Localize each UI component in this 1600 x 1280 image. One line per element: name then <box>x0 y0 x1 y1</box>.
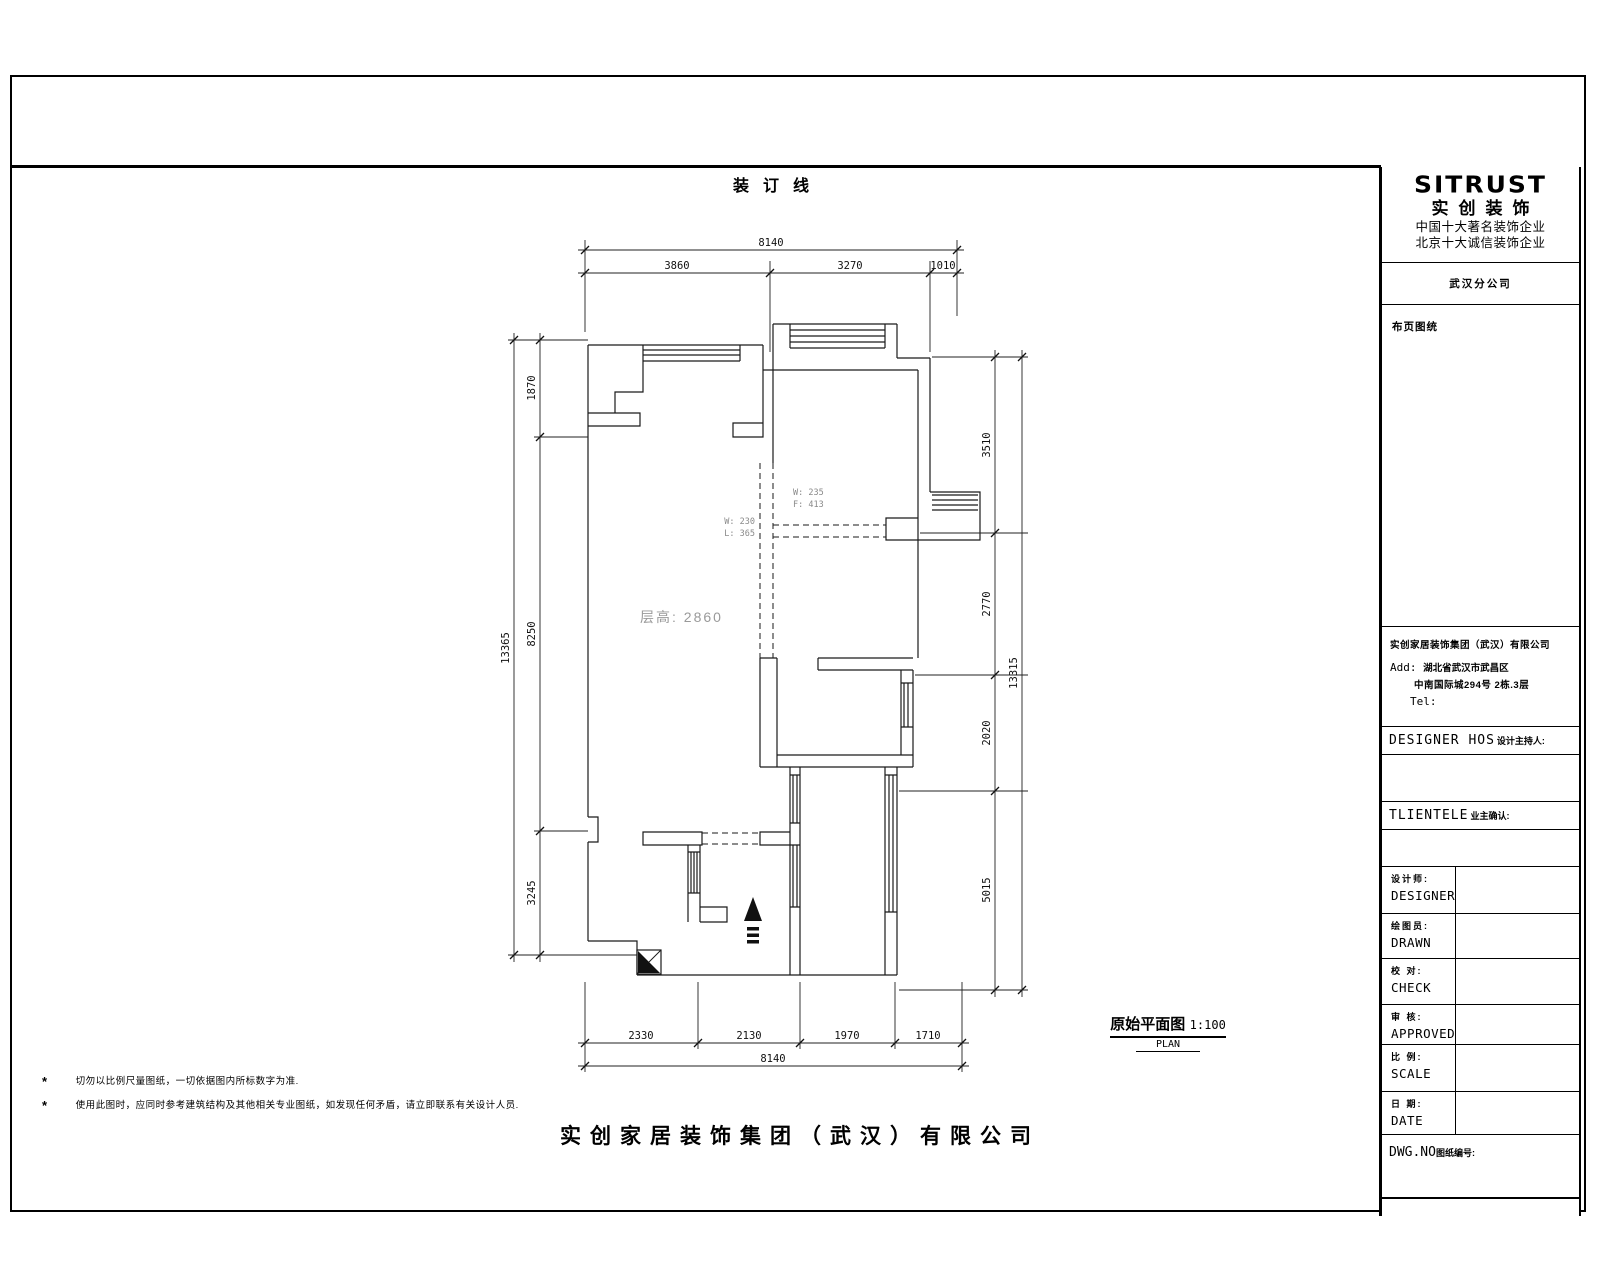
plan-subtitle: PLAN <box>1136 1039 1200 1052</box>
row-check: 校 对: CHECK <box>1382 959 1579 1005</box>
dim-top-seg-2: 3270 <box>837 260 862 272</box>
dim-bottom-seg-3: 1970 <box>834 1030 859 1042</box>
check-label-cn: 校 对: <box>1391 964 1455 977</box>
scale-value-cell <box>1456 1045 1579 1091</box>
designer-label-cn: 设计师: <box>1391 872 1455 885</box>
company-info-cell: 实创家居装饰集团（武汉）有限公司 Add: 湖北省武汉市武昌区 中南国际城294… <box>1382 627 1579 727</box>
designer-value-cell <box>1456 867 1579 913</box>
row-drawn: 绘图员: DRAWN <box>1382 914 1579 959</box>
designer-host-value-cell <box>1382 755 1579 802</box>
beam-note-left-2: L: 365 <box>724 529 755 539</box>
clientele-en: TLIENTELE <box>1389 808 1468 823</box>
shaft-symbol <box>637 950 661 974</box>
designer-label-en: DESIGNER <box>1391 888 1455 903</box>
dwg-label-cn: 图纸编号: <box>1436 1148 1475 1158</box>
branch-name: 武汉分公司 <box>1382 263 1579 305</box>
clientele-row: TLIENTELE 业主确认: <box>1382 802 1579 830</box>
drawn-value-cell <box>1456 914 1579 958</box>
dim-bottom-seg-4: 1710 <box>915 1030 940 1042</box>
tel-label: Tel: <box>1410 695 1579 708</box>
dim-right-seg-4: 5015 <box>981 877 993 902</box>
dim-bottom-seg-1: 2330 <box>628 1030 653 1042</box>
beam-note-right-2: F: 413 <box>793 500 824 510</box>
note-2-text: 使用此图时，应同时参考建筑结构及其他相关专业图纸，如发现任何矛盾，请立即联系有关… <box>76 1100 519 1111</box>
dimension-lines <box>508 240 1028 1072</box>
row-approved: 审 核: APPROVED <box>1382 1005 1579 1045</box>
check-value-cell <box>1456 959 1579 1004</box>
note-1-star: * <box>42 1074 48 1089</box>
drawn-label-cn: 绘图员: <box>1391 919 1455 932</box>
dwg-no-row: DWG.NO图纸编号: <box>1382 1135 1579 1199</box>
dwg-label-en: DWG.NO <box>1389 1145 1436 1160</box>
approved-label-en: APPROVED <box>1391 1026 1455 1041</box>
note-1-text: 切勿以比例尺量图纸，一切依据图内所标数字为准. <box>76 1076 299 1087</box>
address-line-2: 中南国际城294号 2栋.3层 <box>1414 677 1579 691</box>
address-label: Add: <box>1390 661 1417 674</box>
scale-label-en: SCALE <box>1391 1066 1455 1081</box>
tagline-1: 中国十大著名装饰企业 <box>1382 219 1579 235</box>
bottom-company-name: 实创家居装饰集团（武汉）有限公司 <box>540 1120 1060 1150</box>
dim-right-seg-1: 3510 <box>981 432 993 457</box>
date-label-cn: 日 期: <box>1391 1097 1455 1110</box>
page-label-cell: 布页图统 <box>1382 305 1579 627</box>
dim-left-total: 13365 <box>500 632 512 664</box>
tagline-2: 北京十大诚信装饰企业 <box>1382 235 1579 251</box>
brand-name: 实创装饰 <box>1382 198 1579 219</box>
row-designer: 设计师: DESIGNER <box>1382 867 1579 914</box>
row-date: 日 期: DATE <box>1382 1092 1579 1135</box>
dim-top-seg-1: 3860 <box>664 260 689 272</box>
approved-value-cell <box>1456 1005 1579 1044</box>
dim-top-total: 8140 <box>758 237 783 249</box>
plan-walls <box>588 324 980 975</box>
dim-top-seg-3: 1010 <box>930 260 955 272</box>
plan-scale: 1:100 <box>1190 1018 1226 1032</box>
note-2: *使用此图时，应同时参考建筑结构及其他相关专业图纸，如发现任何矛盾，请立即联系有… <box>42 1097 519 1113</box>
note-1: *切勿以比例尺量图纸，一切依据图内所标数字为准. <box>42 1073 299 1089</box>
dim-right-seg-3: 2020 <box>981 720 993 745</box>
dim-bottom-total: 8140 <box>760 1053 785 1065</box>
title-block-logo-cell: SITRUST 实创装饰 中国十大著名装饰企业 北京十大诚信装饰企业 <box>1382 167 1579 263</box>
beam-note-right-1: W: 235 <box>793 488 824 498</box>
date-label-en: DATE <box>1391 1113 1455 1128</box>
title-block-tail <box>1382 1199 1579 1216</box>
date-value-cell <box>1456 1092 1579 1134</box>
designer-host-cn: 设计主持人: <box>1497 734 1545 747</box>
plan-title: 原始平面图 1:100 PLAN <box>1100 1013 1236 1052</box>
designer-host-row: DESIGNER HOS 设计主持人: <box>1382 727 1579 755</box>
beam-note-left-1: W: 230 <box>724 517 755 527</box>
clientele-value-cell <box>1382 830 1579 867</box>
drawn-label-en: DRAWN <box>1391 935 1455 950</box>
designer-host-en: DESIGNER HOS <box>1389 733 1495 748</box>
approved-label-cn: 审 核: <box>1391 1010 1455 1023</box>
dim-right-seg-2: 2770 <box>981 591 993 616</box>
address-line-1: 湖北省武汉市武昌区 <box>1423 663 1509 674</box>
row-scale: 比 例: SCALE <box>1382 1045 1579 1092</box>
company-name: 实创家居装饰集团（武汉）有限公司 <box>1390 637 1579 651</box>
clientele-cn: 业主确认: <box>1470 809 1509 822</box>
title-block: SITRUST 实创装饰 中国十大著名装饰企业 北京十大诚信装饰企业 武汉分公司… <box>1379 167 1581 1216</box>
dim-left-seg-2: 8250 <box>526 621 538 646</box>
dim-right-total: 13315 <box>1008 657 1020 689</box>
sitrust-logo: SITRUST <box>1382 173 1579 197</box>
floor-height-label: 层高: 2860 <box>640 609 723 625</box>
check-label-en: CHECK <box>1391 980 1455 995</box>
note-2-star: * <box>42 1098 48 1113</box>
dim-bottom-seg-2: 2130 <box>736 1030 761 1042</box>
entry-arrow-icon <box>744 897 762 944</box>
scale-label-cn: 比 例: <box>1391 1050 1455 1063</box>
plan-title-text: 原始平面图 <box>1110 1016 1185 1033</box>
dim-left-seg-3: 3245 <box>526 880 538 905</box>
dim-left-seg-1: 1870 <box>526 375 538 400</box>
